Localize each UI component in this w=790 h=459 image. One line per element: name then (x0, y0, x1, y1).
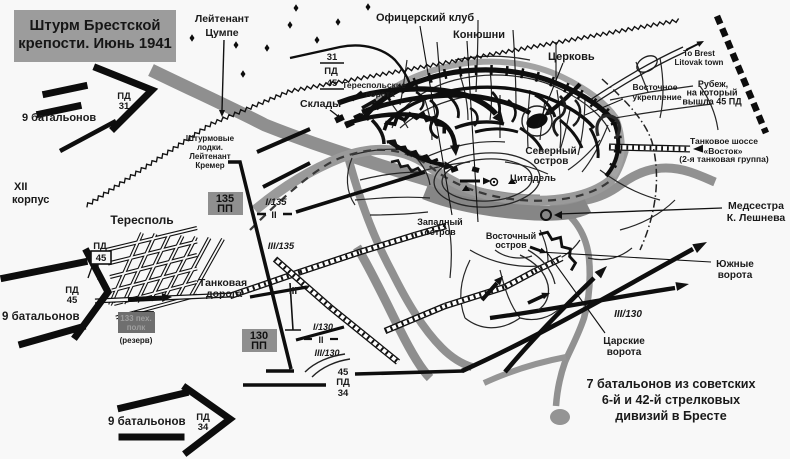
svg-text:III/135: III/135 (268, 241, 295, 252)
svg-text:9 батальонов: 9 батальонов (108, 416, 186, 428)
svg-text:К. Лешнева: К. Лешнева (727, 212, 786, 224)
svg-text:ворота: ворота (718, 270, 753, 281)
svg-text:крепости. Июнь 1941: крепости. Июнь 1941 (18, 36, 172, 52)
svg-text:Цитадель: Цитадель (510, 173, 556, 184)
svg-text:133 пех.: 133 пех. (120, 314, 151, 323)
svg-text:Южные: Южные (716, 259, 754, 270)
svg-text:Цумпе: Цумпе (205, 27, 238, 39)
svg-text:II: II (271, 210, 276, 221)
svg-text:45: 45 (327, 78, 338, 89)
svg-text:Танковое шоссе: Танковое шоссе (690, 136, 758, 146)
svg-text:Конюшни: Конюшни (453, 29, 505, 41)
svg-text:(резерв): (резерв) (120, 336, 153, 345)
svg-text:31: 31 (327, 52, 338, 63)
svg-text:7 батальонов из советских: 7 батальонов из советских (586, 377, 755, 391)
svg-text:II: II (318, 335, 323, 345)
svg-text:ПП: ПП (251, 340, 267, 352)
svg-text:Лейтенант: Лейтенант (189, 152, 230, 161)
svg-text:корпус: корпус (12, 194, 49, 206)
svg-text:вышла 45 ПД: вышла 45 ПД (682, 97, 742, 107)
svg-text:ПП: ПП (217, 203, 233, 215)
svg-text:III/130: III/130 (614, 309, 642, 320)
svg-text:9 батальонов: 9 батальонов (22, 112, 96, 124)
svg-text:дивизий в Бресте: дивизий в Бресте (615, 409, 726, 423)
svg-text:XII: XII (14, 181, 27, 193)
svg-text:ПД: ПД (336, 377, 350, 388)
svg-text:Лейтенант: Лейтенант (195, 13, 249, 25)
svg-text:Церковь: Церковь (548, 51, 595, 63)
svg-text:Кремер: Кремер (195, 161, 224, 170)
svg-text:ворота: ворота (365, 89, 395, 99)
svg-text:Тересполь: Тересполь (110, 213, 173, 227)
svg-text:Офицерский клуб: Офицерский клуб (376, 12, 474, 24)
svg-text:34: 34 (338, 388, 349, 399)
svg-text:31: 31 (119, 101, 130, 112)
svg-text:полк: полк (127, 323, 147, 332)
svg-text:Царские: Царские (603, 336, 645, 347)
svg-text:ПД: ПД (324, 66, 338, 77)
svg-text:Litovak town: Litovak town (675, 58, 724, 67)
svg-text:лодки.: лодки. (197, 143, 223, 152)
svg-text:III/130: III/130 (314, 348, 339, 358)
svg-text:6-й и 42-й стрелковых: 6-й и 42-й стрелковых (602, 393, 740, 407)
svg-text:(2-я танковая группа): (2-я танковая группа) (679, 154, 769, 164)
svg-text:Склады: Склады (300, 98, 341, 110)
svg-text:Медсестра: Медсестра (728, 200, 784, 212)
svg-text:ворота: ворота (607, 347, 642, 358)
svg-text:I/130: I/130 (313, 322, 333, 332)
svg-text:остров: остров (495, 240, 527, 250)
svg-text:Западный: Западный (417, 217, 462, 227)
svg-text:Штурм Брестской: Штурм Брестской (30, 18, 161, 34)
svg-text:34: 34 (198, 422, 209, 433)
svg-text:III: III (289, 286, 298, 297)
svg-text:укрепление: укрепление (632, 92, 681, 102)
svg-text:45: 45 (67, 295, 78, 306)
svg-text:I/135: I/135 (265, 197, 287, 208)
svg-text:9 батальонов: 9 батальонов (2, 311, 80, 323)
svg-text:остров: остров (424, 227, 456, 237)
svg-text:Штурмовые: Штурмовые (186, 134, 235, 143)
svg-text:45: 45 (96, 253, 107, 264)
svg-text:To Brest: To Brest (683, 49, 715, 58)
svg-text:остров: остров (534, 156, 569, 167)
svg-text:Восточное: Восточное (633, 82, 678, 92)
svg-text:дорога: дорога (206, 288, 242, 300)
